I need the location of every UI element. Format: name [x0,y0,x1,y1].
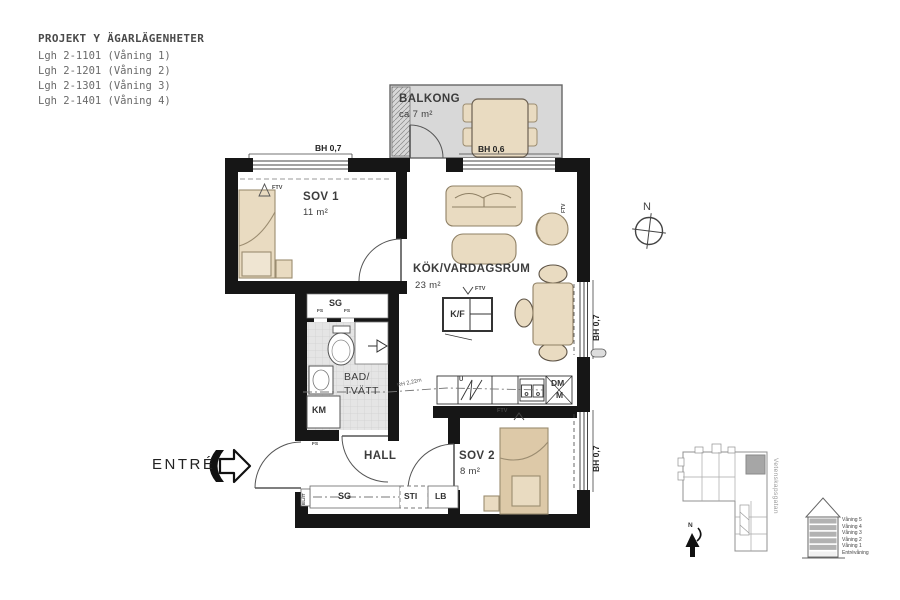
compass-north-label: N [643,202,651,213]
fixture-label-u: U [459,377,463,383]
sov1-furniture [239,184,292,278]
fixture-label-sg: SG [329,299,342,308]
sill-height-label: BH 0,6 [478,145,504,154]
room-area-kok: 23 m² [415,281,441,291]
room-label-kok: KÖK/VARDAGSRUM [413,264,530,276]
ftv-mark: FTV [562,204,567,213]
wall-vent [591,349,606,357]
floor-band [810,532,837,537]
floorplan-page: PROJEKT Y ÄGARLÄGENHETER Lgh 2-1101 (Vån… [0,0,900,600]
north-compass-icon [630,211,668,251]
site-north-arrow-icon [686,528,701,557]
floor-band [810,519,837,524]
entre-arrow-icon [210,450,251,482]
sov2-furniture [484,428,548,514]
fixture-label-kf: K/F [445,310,470,319]
room-label-balkong: BALKONG [399,94,460,106]
fs-mark: FS [344,310,350,315]
sov1-door [359,239,401,281]
fixture-label-lb: LB [435,492,446,501]
room-area-sov1: 11 m² [303,208,328,218]
floor-band [810,538,837,543]
entry-door [255,442,301,488]
sill-height-label: BH 0,7 [592,315,601,341]
ftv-mark: FTV [475,287,485,293]
room-area-sov2: 8 m² [460,467,480,477]
fs-mark: FS [312,443,318,448]
bathroom-sink [309,366,333,394]
ftv-mark: FTV [272,186,282,192]
fixture-label-m: M [556,391,563,400]
site-north-label: N [688,523,693,530]
floor-label: Våning 5 [842,517,862,524]
apartment-list-item: Lgh 2-1401 (Våning 4) [38,96,171,107]
room-label-sov1: SOV 1 [303,192,339,204]
sill-height-label: BH 0,7 [315,144,341,153]
armchair [536,213,568,245]
apartment-list-item: Lgh 2-1101 (Våning 1) [38,51,171,62]
stair-core [740,505,749,535]
coffee-table [452,234,516,264]
room-area-balkong: ca 7 m² [399,110,433,120]
dining-set [515,265,573,361]
fixture-label-km: KM [312,406,326,415]
apartment-list-item: Lgh 2-1301 (Våning 3) [38,81,171,92]
unit-location-highlight [746,455,765,474]
nightstand [484,496,499,511]
floor-band [810,525,837,530]
fridge-freezer [443,298,492,340]
project-title: PROJEKT Y ÄGARLÄGENHETER [38,33,204,44]
ftv-mark: FTV [497,409,507,415]
vent-chevron-down-icon [463,287,473,294]
site-plan [678,444,767,557]
floor-band-entre [810,552,837,557]
street-name-label: Vetenskapsgatan [772,458,779,514]
elevation-diagram [802,498,845,558]
shower [355,322,388,364]
entre-label: ENTRÉ [152,457,215,472]
room-label-bad-line2: TVÄTT [344,386,379,397]
window-sov1 [249,154,352,172]
room-label-sov2: SOV 2 [459,451,495,463]
fixture-label-sg: SG [338,492,351,501]
nightstand [276,260,292,278]
sofa [446,186,522,226]
room-label-bad-line1: BAD/ [344,372,370,383]
apartment-list-item: Lgh 2-1201 (Våning 2) [38,66,171,77]
sill-height-label: BH 0,7 [592,446,601,472]
room-label-hall: HALL [364,451,396,463]
bed-pillow [242,252,271,276]
fixture-label-dm: DM [551,379,564,388]
dining-table [533,283,573,345]
sov2-door [408,444,454,490]
el-it-mark: EL/IT [303,493,308,505]
floor-band [810,545,837,550]
fixture-label-sti: STI [404,492,417,501]
floor-label: Våning 1 [842,543,862,550]
bed-pillow [512,476,540,506]
floor-label: Entrévåning [842,550,869,557]
fs-mark: FS [317,310,323,315]
floor-label: Våning 3 [842,530,862,537]
